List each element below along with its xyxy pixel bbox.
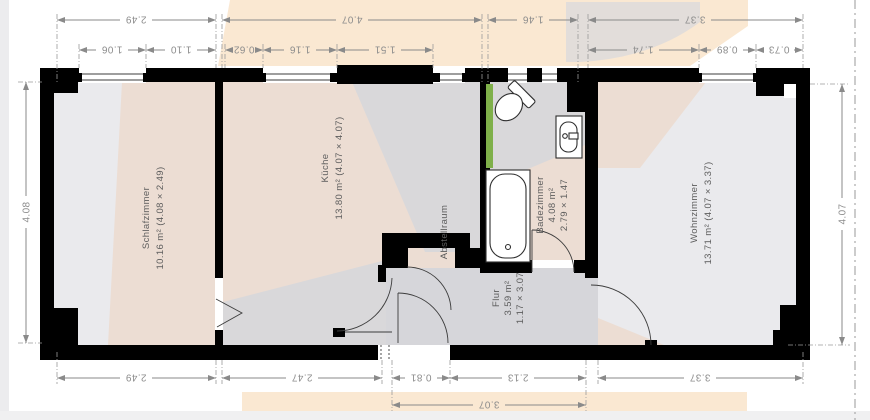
dimension-bottom-249: 2.49 [57,372,216,383]
svg-text:Küche: Küche [320,154,331,183]
window-badezimmer-1 [508,68,527,83]
window-badezimmer-2 [542,68,557,83]
svg-text:0.62: 0.62 [233,44,254,55]
svg-text:0.89: 0.89 [716,44,737,55]
svg-text:13.80 m² (4.07 × 4.07): 13.80 m² (4.07 × 4.07) [334,116,345,219]
svg-text:1.46: 1.46 [522,14,543,25]
svg-text:Wohnzimmer: Wohnzimmer [689,183,700,243]
svg-text:10.16 m² (4.08 × 2.49): 10.16 m² (4.08 × 2.49) [155,166,166,269]
dimension-bottom-213: 2.13 [450,372,586,383]
svg-text:1.51: 1.51 [374,44,395,55]
svg-text:1.74: 1.74 [632,44,653,55]
svg-text:0.73: 0.73 [768,44,789,55]
dimension-top-249: 2.49 [57,14,216,25]
svg-text:3.37: 3.37 [684,14,705,25]
balcony-door-panel [337,65,433,84]
heater-strip [486,84,493,168]
svg-text:1.16: 1.16 [289,44,310,55]
svg-text:2.49: 2.49 [125,372,146,383]
label-abstellraum: Abstellraum [439,205,450,260]
svg-text:4.08: 4.08 [22,201,33,222]
svg-text:2.49: 2.49 [125,14,146,25]
svg-text:1.10: 1.10 [170,44,191,55]
window-kueche [263,65,465,84]
svg-text:0.81: 0.81 [410,372,431,383]
window-wohnzimmer [699,68,756,83]
svg-text:4.08 m²: 4.08 m² [547,187,558,222]
sink [556,116,582,158]
svg-text:Schlafzimmer: Schlafzimmer [141,187,152,249]
dimension-top2-106: 1.06 [79,44,146,55]
dimension-left-408: 4.08 [22,82,33,343]
svg-text:2.13: 2.13 [507,372,528,383]
svg-text:3.37: 3.37 [689,372,710,383]
wall-notch [784,84,796,98]
svg-text:4.07: 4.07 [341,14,362,25]
floorplan-page: 2.49 4.07 1.46 3.37 1.06 1.10 0.62 1.16 [0,0,870,420]
svg-text:2.47: 2.47 [291,372,312,383]
dimension-top2-073: 0.73 [756,44,803,55]
svg-text:Badezimmer: Badezimmer [535,176,546,233]
dimension-bottom-247: 2.47 [222,372,382,383]
dimension-bottom-081: 0.81 [392,372,450,383]
svg-text:3.59 m²: 3.59 m² [503,280,514,315]
svg-text:3.07: 3.07 [478,399,499,410]
window-schlafzimmer [79,68,146,83]
floorplan-svg: 2.49 4.07 1.46 3.37 1.06 1.10 0.62 1.16 [0,0,870,420]
dimension-right-407: 4.07 [838,84,849,345]
svg-text:4.07: 4.07 [838,203,849,224]
svg-text:13.71 m² (4.07 × 3.37): 13.71 m² (4.07 × 3.37) [703,161,714,264]
svg-text:2.79 × 1.47: 2.79 × 1.47 [559,179,570,231]
svg-text:Flur: Flur [491,289,502,307]
svg-text:1.17 × 3.07: 1.17 × 3.07 [515,272,526,324]
svg-text:Abstellraum: Abstellraum [439,205,450,260]
dimension-top2-110: 1.10 [146,44,216,55]
bathtub [486,170,530,262]
dimension-bottom-337: 3.37 [598,372,803,383]
entrance-threshold [381,345,389,360]
svg-text:1.06: 1.06 [101,44,122,55]
